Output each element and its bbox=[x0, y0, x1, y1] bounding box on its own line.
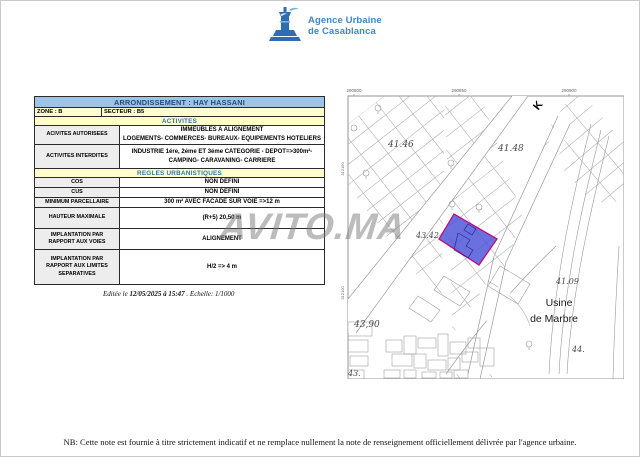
usine-label-line2: de Marbre bbox=[530, 313, 578, 325]
row-value: ALIGNEMENT bbox=[120, 229, 325, 250]
row-value: (R+5) 20,50 m bbox=[120, 208, 325, 229]
edition-suffix: . Echelle: 1/1000 bbox=[185, 290, 235, 298]
coord-label: 290800 bbox=[346, 88, 362, 93]
agency-name-line2: de Casablanca bbox=[308, 27, 382, 38]
row-value: IMMEUBLES A ALIGNEMENT LOGEMENTS- COMMER… bbox=[120, 126, 325, 145]
row-label: ACIVITES AUTORISEES bbox=[35, 126, 120, 145]
monument-icon bbox=[267, 7, 303, 47]
row-label: IMPLANTATION PAR RAPPORT AUX LIMITES SEP… bbox=[35, 250, 120, 285]
coord-label: 290850 bbox=[451, 88, 467, 93]
row-label: HAUTEUR MAXIMALE bbox=[35, 208, 120, 229]
parcel-number: 43.42 bbox=[415, 231, 439, 240]
value-line: CAMPING- CARAVANING- CARRIERE bbox=[122, 157, 322, 166]
coord-label: 312100 bbox=[340, 286, 345, 300]
parcel-number: 43. bbox=[347, 369, 361, 378]
bird-icon bbox=[289, 8, 299, 11]
row-label: COS bbox=[35, 178, 120, 188]
value-line: INDUSTRIE 1ére, 2éme ET 3éme CATEGORIE -… bbox=[122, 148, 322, 157]
agency-name: Agence Urbaine de Casablanca bbox=[308, 16, 382, 37]
row-value: 300 m² AVEC FACADE SUR VOIE =>12 m bbox=[120, 198, 325, 208]
edition-note: Editée le 12/05/2025 à 15:47 . Echelle: … bbox=[103, 290, 234, 298]
zone-cell: ZONE : B bbox=[35, 108, 102, 117]
row-value: INDUSTRIE 1ére, 2éme ET 3éme CATEGORIE -… bbox=[120, 145, 325, 169]
usine-label-line1: Usine bbox=[546, 297, 573, 309]
parcel-number: 41.09 bbox=[555, 277, 579, 286]
regulations-table: ARRONDISSEMENT : HAY HASSANI ZONE : B SE… bbox=[34, 96, 325, 285]
parcel-number: 44. bbox=[571, 345, 585, 354]
value-line: LOGEMENTS- COMMERCES- BUREAUX- EQUIPEMEN… bbox=[122, 135, 322, 144]
coord-label: 290900 bbox=[561, 88, 577, 93]
row-value: NON DEFINI bbox=[120, 188, 325, 198]
section-regles: REGLES URBANISTIQUES bbox=[35, 169, 325, 178]
row-label: ACTIVITES INTERDITES bbox=[35, 145, 120, 169]
section-activites: ACTIVITES bbox=[35, 117, 325, 126]
row-value: H/2 => 4 m bbox=[120, 250, 325, 285]
edition-prefix: Editée le bbox=[103, 290, 129, 298]
row-label: MINIMUM PARCELLAIRE bbox=[35, 198, 120, 208]
row-label: CUS bbox=[35, 188, 120, 198]
table-title: ARRONDISSEMENT : HAY HASSANI bbox=[35, 97, 325, 108]
parcel-number: 43,90 bbox=[353, 320, 380, 330]
row-label: IMPLANTATION PAR RAPPORT AUX VOIES bbox=[35, 229, 120, 250]
row-value: NON DEFINI bbox=[120, 178, 325, 188]
footer-disclaimer: NB: Cette note est fournie à titre stric… bbox=[1, 437, 639, 447]
urban-planning-note-page: Agence Urbaine de Casablanca ARRONDISSEM… bbox=[0, 0, 640, 457]
cadastral-map: 290800 290850 290900 312150 312100 bbox=[334, 81, 624, 379]
edition-datetime: 12/05/2025 à 15:47 bbox=[129, 290, 184, 298]
parcel-number: 41.48 bbox=[497, 144, 524, 154]
parcel-number: 41.46 bbox=[387, 140, 414, 150]
agency-logo: Agence Urbaine de Casablanca bbox=[267, 7, 382, 47]
coord-label: 312150 bbox=[340, 162, 345, 176]
secteur-cell: SECTEUR : B5 bbox=[102, 108, 325, 117]
value-line: IMMEUBLES A ALIGNEMENT bbox=[122, 126, 322, 135]
